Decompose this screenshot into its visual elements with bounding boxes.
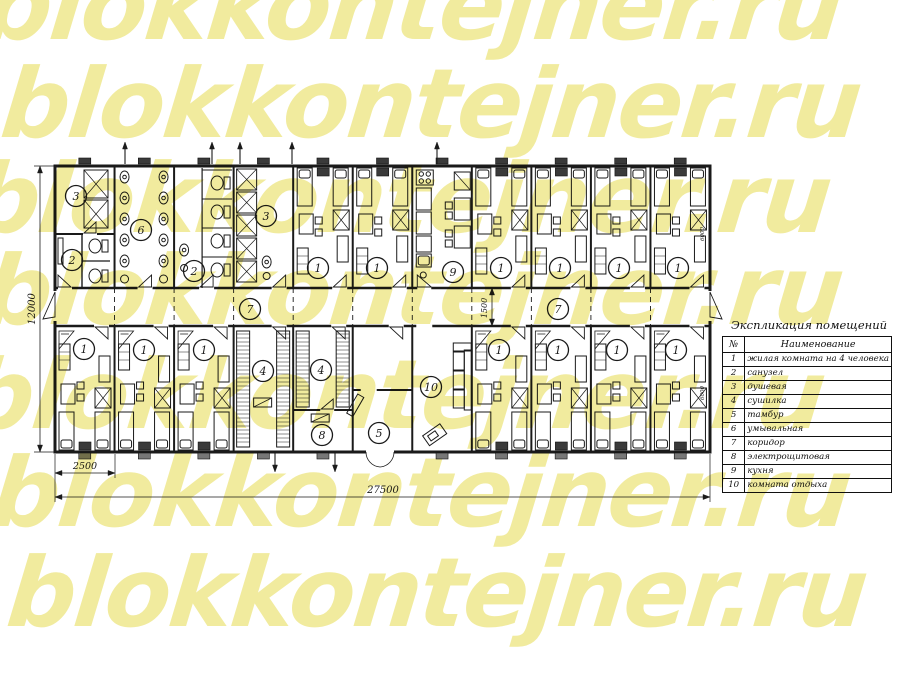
bench (178, 344, 189, 370)
chair (613, 217, 620, 224)
pillow (395, 170, 406, 178)
chair (494, 382, 501, 389)
legend-row: 3душевая (723, 381, 892, 395)
drying-rack (296, 331, 309, 407)
sink (180, 244, 189, 256)
pillow (597, 170, 608, 178)
legend-row: 9кухня (723, 465, 892, 479)
vent-block (257, 158, 269, 164)
vent-block (317, 158, 329, 164)
table (359, 214, 373, 234)
toilet-tank (224, 206, 230, 218)
vent-arrow (290, 142, 295, 149)
kitchen-counter (416, 236, 431, 252)
room-number: 1 (496, 344, 503, 357)
toilet-bowl (89, 269, 101, 283)
legend-row-number: 4 (723, 395, 745, 409)
stove-burner (419, 172, 423, 176)
tv-stand (423, 424, 447, 446)
bench (357, 256, 368, 264)
room-number: 1 (201, 344, 208, 357)
legend-row-name: кухня (745, 465, 892, 479)
legend-col-no: № (723, 337, 745, 353)
pillow (514, 170, 525, 178)
drying-rack (336, 331, 349, 407)
furniture (43, 158, 722, 467)
sink (159, 192, 168, 204)
tv (423, 424, 447, 446)
vent-block (198, 158, 210, 164)
pillow (478, 170, 489, 178)
legend-row-number: 10 (723, 479, 745, 493)
door-leaf (95, 327, 108, 339)
vent-block (257, 453, 269, 459)
legend-row-name: комната отдыха (745, 479, 892, 493)
room-number: 8 (319, 429, 326, 442)
door-leaf (571, 327, 584, 339)
pillow (692, 170, 703, 178)
floor-drain (160, 275, 168, 283)
legend-row-number: 6 (723, 423, 745, 437)
chair (553, 229, 560, 236)
wardrobe (512, 388, 528, 408)
chair (315, 217, 322, 224)
room-number: 2 (190, 265, 198, 278)
table (656, 384, 670, 404)
table (597, 384, 611, 404)
legend-row-number: 3 (723, 381, 745, 395)
legend-row-number: 1 (723, 353, 745, 367)
toilet-tank (224, 264, 230, 276)
table (454, 198, 470, 220)
bench (535, 248, 546, 274)
dim-arrow (108, 470, 115, 475)
dim-corridor-width: 1500 (480, 298, 489, 318)
sink (162, 217, 166, 221)
room-number: 9 (450, 266, 457, 279)
wardrobe (571, 388, 587, 408)
vent-block (615, 168, 627, 176)
toilet-tank (102, 270, 108, 282)
bench (476, 248, 487, 274)
room-number: 1 (673, 344, 680, 357)
door-leaf (390, 327, 403, 339)
floor-drain (121, 275, 129, 283)
bench (595, 352, 606, 360)
pillow (573, 170, 584, 178)
bench (595, 344, 606, 370)
legend-col-name: Наименование (745, 337, 892, 353)
pillow (299, 170, 310, 178)
door-leaf (273, 327, 286, 339)
dim-arrow (37, 166, 42, 173)
kitchen-counter (416, 212, 431, 234)
chair (672, 394, 679, 401)
sofa-cushion (453, 390, 464, 408)
vent-block (79, 442, 91, 450)
drying-rack (277, 331, 290, 447)
vent-arrow (210, 142, 215, 149)
sink (265, 260, 269, 264)
armchair (59, 331, 74, 349)
sink (159, 213, 168, 225)
pillow (537, 440, 548, 448)
legend-row-number: 8 (723, 451, 745, 465)
room-number: 7 (555, 303, 562, 316)
room-number: 1 (498, 262, 505, 275)
legend-row-number: 2 (723, 367, 745, 381)
sink (123, 175, 127, 179)
dim-container-length: 6000 (700, 386, 706, 400)
room-number: 1 (614, 344, 621, 357)
vent-block (555, 158, 567, 164)
wardrobe (393, 210, 409, 230)
stove-burner (426, 172, 430, 176)
entry-door-swing (366, 452, 380, 467)
wardrobe (690, 210, 706, 230)
drying-rack (277, 334, 290, 442)
wardrobe (631, 388, 647, 408)
legend-row: 1жилая комната на 4 человека (723, 353, 892, 367)
sink (159, 255, 168, 267)
room-number: 2 (68, 254, 76, 267)
dim-arrow (703, 494, 710, 499)
door-opening (361, 388, 377, 392)
door-leaf (155, 327, 168, 339)
table (478, 214, 492, 234)
legend-row-name: душевая (745, 381, 892, 395)
kitchen-sink (418, 256, 429, 265)
walls (55, 166, 710, 452)
vents (123, 142, 440, 472)
room-number: 3 (263, 210, 270, 223)
table (537, 384, 551, 404)
chair (375, 217, 382, 224)
chair (672, 382, 679, 389)
stool (445, 202, 452, 209)
wardrobe (95, 388, 111, 408)
sofa-cushion (453, 371, 464, 389)
locker (635, 236, 646, 262)
pillow (359, 170, 370, 178)
outer-wall (55, 166, 710, 452)
legend-row-name: тамбур (745, 409, 892, 423)
bench (476, 352, 487, 360)
table (478, 384, 492, 404)
vent-block (496, 168, 508, 176)
vent-block (555, 168, 567, 176)
room-number: 1 (315, 262, 322, 275)
locker (337, 236, 348, 262)
dim-arrow (37, 445, 42, 452)
heater (58, 238, 63, 264)
legend-row: 8электрощитовая (723, 451, 892, 465)
vent-block (436, 158, 448, 164)
door-leaf (273, 275, 286, 287)
stove-burner (426, 179, 430, 183)
shower-stall (84, 170, 108, 198)
chair (77, 382, 84, 389)
entry-door-swing (380, 452, 394, 467)
locker (575, 356, 586, 382)
stove-burner (419, 179, 423, 183)
chair (196, 394, 203, 401)
vent-block (79, 453, 91, 459)
pillow (573, 440, 584, 448)
fridge (454, 172, 470, 190)
toilet-bowl (211, 205, 223, 219)
legend-row: 6умывальная (723, 423, 892, 437)
vent-block (436, 453, 448, 459)
dim-arrow (55, 470, 62, 475)
locker (516, 356, 527, 382)
room-number: 6 (138, 224, 145, 237)
drawing-sheet: 1200025002750015006000600032623119111177… (0, 0, 900, 675)
pillow (597, 440, 608, 448)
door-leaf (690, 327, 703, 339)
bench (59, 352, 70, 360)
stove (416, 170, 433, 185)
sink (162, 259, 166, 263)
bench (535, 344, 546, 370)
bench (654, 344, 665, 370)
legend-row: 2санузел (723, 367, 892, 381)
dim-total-width: 12000 (27, 292, 38, 324)
bench (476, 256, 487, 264)
drying-rack (237, 334, 250, 442)
door-leaf (571, 275, 584, 287)
wardrobe (631, 210, 647, 230)
vent-arrow (435, 142, 440, 149)
vent-block (674, 442, 686, 450)
room-number: 1 (616, 262, 623, 275)
chair (137, 382, 144, 389)
bench (595, 248, 606, 274)
door-leaf (58, 275, 71, 287)
sink (159, 234, 168, 246)
vent-block (139, 442, 151, 450)
kitchen-counter (416, 188, 431, 210)
vent-block (555, 453, 567, 459)
legend-row: 4сушилка (723, 395, 892, 409)
room-number: 5 (376, 427, 383, 440)
table (180, 384, 194, 404)
door-leaf (631, 327, 644, 339)
vent-arrow (238, 142, 243, 149)
sink (123, 238, 127, 242)
vent-block (615, 453, 627, 459)
locker (397, 236, 408, 262)
chair (196, 382, 203, 389)
chair (315, 229, 322, 236)
tv (428, 431, 439, 441)
vent-block (377, 158, 389, 164)
chair (494, 229, 501, 236)
bench (297, 248, 308, 274)
sink (182, 248, 186, 252)
dim-container-length: 6000 (700, 227, 706, 241)
sink (120, 171, 129, 183)
door-leaf (512, 275, 525, 287)
sink (123, 217, 127, 221)
shower-stall (237, 215, 257, 236)
door-leaf (139, 275, 152, 287)
door-leaf (393, 275, 406, 287)
pillow (335, 170, 346, 178)
legend-title: Экспликация помещений (722, 318, 896, 332)
sink (162, 238, 166, 242)
locker (635, 356, 646, 382)
room-number: 1 (81, 343, 88, 356)
door-leaf (214, 327, 227, 339)
legend-row-name: коридор (745, 437, 892, 451)
vent-block (79, 158, 91, 164)
chair (613, 229, 620, 236)
locker (218, 356, 229, 382)
stool (445, 230, 452, 237)
pillow (656, 170, 667, 178)
pillow (478, 440, 489, 448)
door-opening (366, 450, 394, 454)
room-number: 1 (557, 262, 564, 275)
pillow (61, 440, 72, 448)
toilet-bowl (211, 234, 223, 248)
bench (254, 398, 272, 407)
vent-block (317, 453, 329, 459)
shower-stall (237, 192, 257, 213)
chair (553, 394, 560, 401)
locker (694, 356, 705, 382)
toilet-bowl (89, 239, 101, 253)
legend-row: 5тамбур (723, 409, 892, 423)
vent-block (198, 453, 210, 459)
table (121, 384, 135, 404)
sink (159, 171, 168, 183)
room-number: 1 (374, 262, 381, 275)
sink (123, 196, 127, 200)
vent-block (555, 442, 567, 450)
vent-block (198, 442, 210, 450)
vent-block (138, 453, 150, 459)
room-number: 1 (141, 344, 148, 357)
sink (120, 255, 129, 267)
bench (119, 352, 130, 360)
table (656, 214, 670, 234)
table (454, 226, 470, 248)
bench (595, 256, 606, 264)
vent-block (496, 158, 508, 164)
stool (445, 212, 452, 219)
locker (575, 236, 586, 262)
legend-header-row: № Наименование (723, 337, 892, 353)
chair (494, 394, 501, 401)
pillow (537, 170, 548, 178)
legend-row-number: 7 (723, 437, 745, 451)
plan-root: 1200025002750015006000600032623119111177… (27, 142, 722, 502)
electrical-panel (311, 414, 329, 422)
table (537, 214, 551, 234)
legend-row-name: сушилка (745, 395, 892, 409)
room-number: 4 (259, 365, 267, 378)
shower-stall (237, 261, 257, 282)
armchair (654, 331, 669, 349)
toilet-tank (224, 235, 230, 247)
vent-arrow (123, 142, 128, 149)
door-leaf (631, 275, 644, 287)
vent-block (674, 453, 686, 459)
bench (535, 256, 546, 264)
bench (297, 256, 308, 264)
room-number: 10 (424, 381, 438, 394)
sofa-back (464, 350, 471, 410)
floor-drain (420, 272, 426, 278)
door-leaf (512, 327, 525, 339)
bench (59, 344, 70, 370)
room-number: 1 (675, 262, 682, 275)
toilet-tank (224, 177, 230, 189)
chair (613, 394, 620, 401)
door-leaf (333, 275, 346, 287)
legend-row: 10комната отдыха (723, 479, 892, 493)
bench (535, 352, 546, 360)
sink (262, 256, 271, 268)
floor-drain (263, 273, 270, 280)
locker (159, 356, 170, 382)
pillow (157, 440, 168, 448)
legend-row-name: санузел (745, 367, 892, 381)
vent-block (674, 158, 686, 164)
table (299, 214, 313, 234)
pillow (633, 170, 644, 178)
drying-rack (336, 334, 349, 402)
armchair (119, 331, 134, 349)
drying-rack (296, 334, 309, 402)
chair (77, 394, 84, 401)
stool (445, 240, 452, 247)
pillow (97, 440, 108, 448)
bench (178, 352, 189, 360)
pillow (656, 440, 667, 448)
pillow (514, 440, 525, 448)
sink (123, 259, 127, 263)
room-number: 4 (317, 364, 325, 377)
legend: Экспликация помещений № Наименование 1жи… (722, 318, 896, 493)
sink (162, 196, 166, 200)
chair (494, 217, 501, 224)
armchair (178, 331, 193, 349)
wardrobe (155, 388, 171, 408)
legend-row-name: электрощитовая (745, 451, 892, 465)
legend-row-name: умывальная (745, 423, 892, 437)
pillow (121, 440, 132, 448)
legend-row-number: 5 (723, 409, 745, 423)
room-number: 3 (73, 190, 80, 203)
shower-stall (237, 169, 257, 190)
bench (476, 344, 487, 370)
vent-block (615, 442, 627, 450)
bench (654, 256, 665, 264)
wardrobe (214, 388, 230, 408)
bench (654, 352, 665, 360)
sofa-cushion (453, 352, 464, 370)
locker (516, 236, 527, 262)
vent-arrow (333, 465, 338, 472)
vent-block (496, 453, 508, 459)
chair (672, 217, 679, 224)
vent-block (317, 168, 329, 176)
room-number: 7 (247, 303, 254, 316)
vent-block (138, 158, 150, 164)
